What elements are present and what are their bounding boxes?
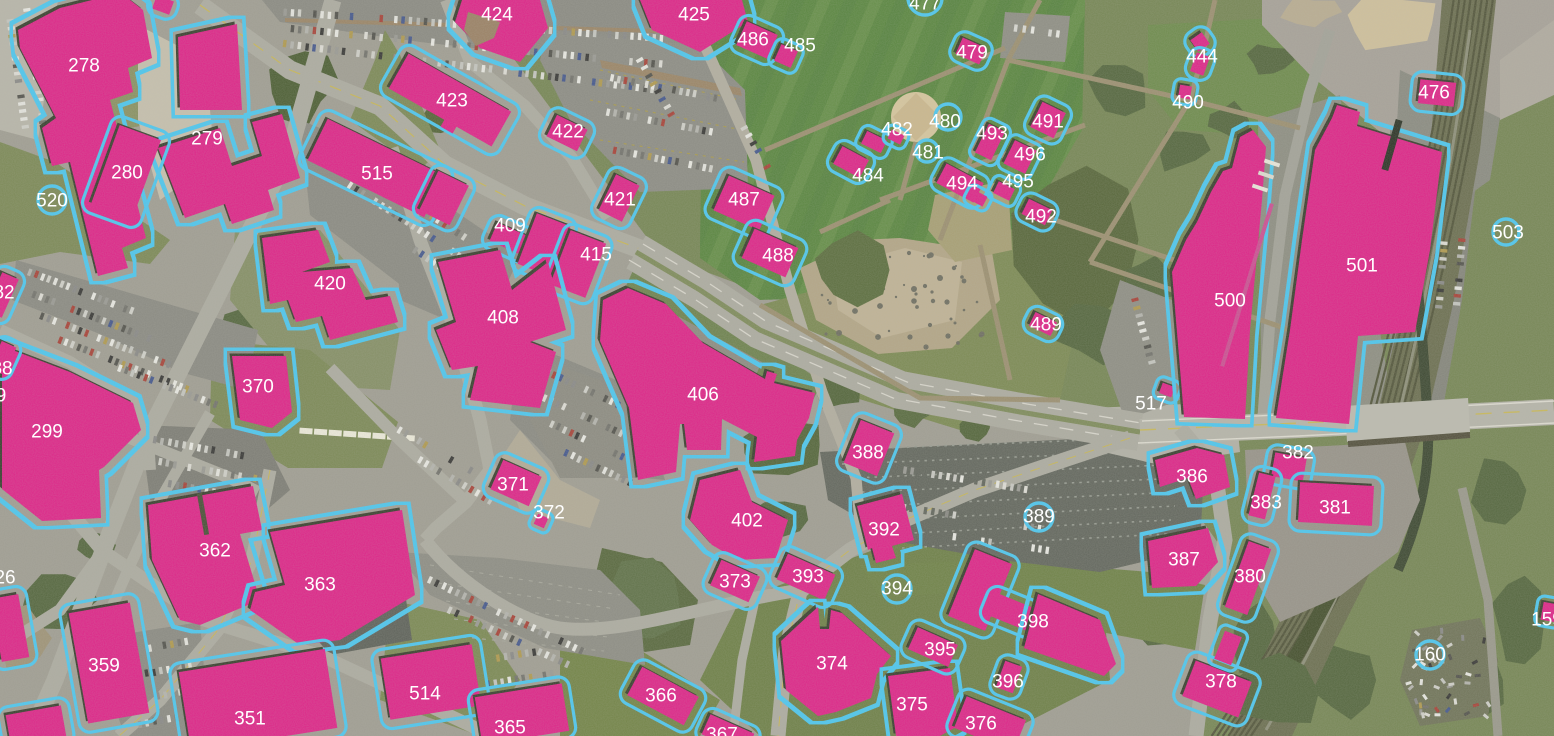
svg-text:500: 500 bbox=[1214, 291, 1246, 312]
svg-text:489: 489 bbox=[1030, 315, 1062, 336]
svg-text:26: 26 bbox=[0, 568, 16, 589]
svg-text:402: 402 bbox=[731, 511, 763, 532]
svg-text:503: 503 bbox=[1492, 223, 1524, 244]
svg-text:365: 365 bbox=[494, 718, 526, 736]
svg-text:387: 387 bbox=[1168, 550, 1200, 571]
svg-text:396: 396 bbox=[992, 672, 1024, 693]
svg-text:490: 490 bbox=[1172, 93, 1204, 114]
svg-text:501: 501 bbox=[1346, 256, 1378, 277]
svg-text:366: 366 bbox=[645, 686, 677, 707]
svg-text:424: 424 bbox=[481, 5, 513, 26]
svg-text:485: 485 bbox=[784, 36, 816, 57]
svg-text:299: 299 bbox=[31, 422, 63, 443]
svg-text:370: 370 bbox=[242, 377, 274, 398]
svg-text:380: 380 bbox=[1234, 567, 1266, 588]
svg-text:398: 398 bbox=[1017, 612, 1049, 633]
svg-text:493: 493 bbox=[976, 124, 1008, 145]
svg-text:481: 481 bbox=[912, 143, 944, 164]
svg-text:389: 389 bbox=[1023, 507, 1055, 528]
svg-text:488: 488 bbox=[762, 246, 794, 267]
svg-text:382: 382 bbox=[1282, 443, 1314, 464]
svg-text:520: 520 bbox=[36, 191, 68, 212]
svg-text:394: 394 bbox=[881, 579, 913, 600]
svg-text:486: 486 bbox=[737, 30, 769, 51]
svg-text:395: 395 bbox=[924, 640, 956, 661]
svg-text:392: 392 bbox=[868, 520, 900, 541]
svg-text:422: 422 bbox=[552, 122, 584, 143]
svg-text:482: 482 bbox=[881, 120, 913, 141]
svg-text:374: 374 bbox=[816, 654, 848, 675]
svg-text:388: 388 bbox=[852, 443, 884, 464]
svg-text:88: 88 bbox=[0, 359, 13, 380]
svg-text:160: 160 bbox=[1414, 645, 1446, 666]
svg-text:378: 378 bbox=[1205, 672, 1237, 693]
svg-text:381: 381 bbox=[1319, 498, 1351, 519]
svg-text:515: 515 bbox=[361, 164, 393, 185]
svg-text:514: 514 bbox=[409, 684, 441, 705]
svg-text:495: 495 bbox=[1002, 172, 1034, 193]
svg-text:517: 517 bbox=[1135, 394, 1167, 415]
svg-text:359: 359 bbox=[88, 656, 120, 677]
svg-text:362: 362 bbox=[199, 541, 231, 562]
svg-text:279: 279 bbox=[191, 129, 223, 150]
svg-text:477: 477 bbox=[909, 0, 941, 15]
svg-text:420: 420 bbox=[314, 274, 346, 295]
svg-text:408: 408 bbox=[487, 308, 519, 329]
svg-text:367: 367 bbox=[706, 725, 738, 736]
svg-text:363: 363 bbox=[304, 575, 336, 596]
svg-text:280: 280 bbox=[111, 163, 143, 184]
svg-text:421: 421 bbox=[604, 190, 636, 211]
svg-text:491: 491 bbox=[1032, 112, 1064, 133]
svg-text:393: 393 bbox=[792, 567, 824, 588]
svg-text:492: 492 bbox=[1025, 207, 1057, 228]
svg-text:9: 9 bbox=[0, 386, 6, 407]
svg-text:376: 376 bbox=[965, 714, 997, 735]
svg-text:480: 480 bbox=[929, 112, 961, 133]
svg-text:484: 484 bbox=[852, 166, 884, 187]
svg-text:406: 406 bbox=[687, 385, 719, 406]
svg-text:479: 479 bbox=[956, 43, 988, 64]
svg-text:487: 487 bbox=[728, 190, 760, 211]
svg-text:496: 496 bbox=[1014, 145, 1046, 166]
svg-text:444: 444 bbox=[1186, 47, 1218, 68]
svg-text:372: 372 bbox=[533, 503, 565, 524]
svg-text:423: 423 bbox=[436, 91, 468, 112]
svg-text:415: 415 bbox=[580, 245, 612, 266]
svg-text:351: 351 bbox=[234, 709, 266, 730]
svg-text:476: 476 bbox=[1418, 83, 1450, 104]
svg-text:425: 425 bbox=[678, 5, 710, 26]
svg-text:409: 409 bbox=[494, 216, 526, 237]
svg-text:383: 383 bbox=[1250, 493, 1282, 514]
svg-text:386: 386 bbox=[1176, 467, 1208, 488]
svg-text:82: 82 bbox=[0, 283, 15, 304]
svg-text:278: 278 bbox=[68, 56, 100, 77]
svg-text:371: 371 bbox=[497, 475, 529, 496]
svg-text:494: 494 bbox=[946, 174, 978, 195]
svg-text:373: 373 bbox=[719, 572, 751, 593]
svg-text:159: 159 bbox=[1531, 610, 1554, 631]
svg-text:375: 375 bbox=[896, 695, 928, 716]
